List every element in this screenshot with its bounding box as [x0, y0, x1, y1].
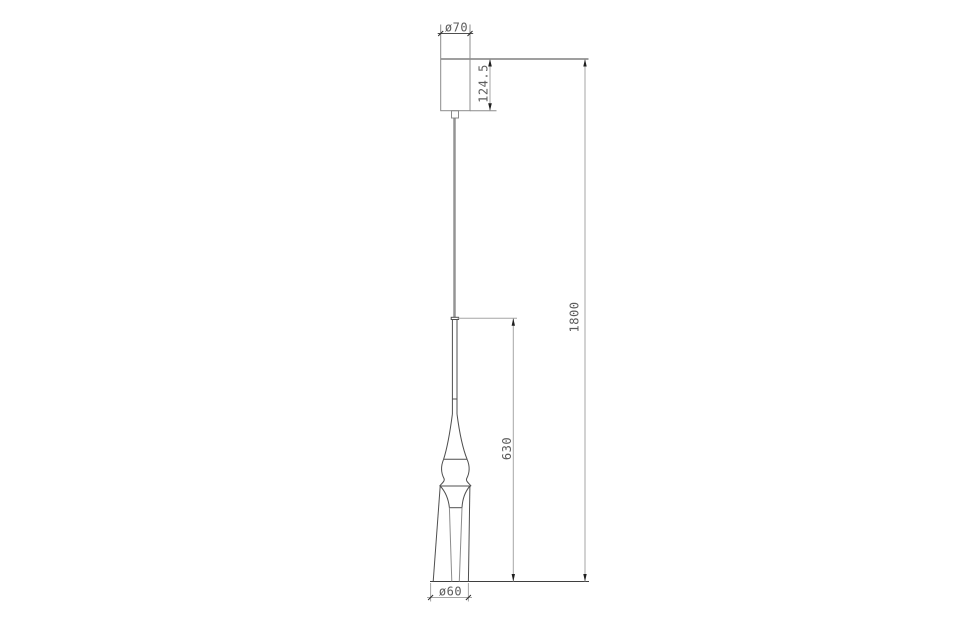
- drawing-canvas: ø70 124.5 630 1800 ø60: [0, 0, 975, 622]
- label-shade-height: 630: [500, 437, 514, 460]
- label-canopy-diameter: ø70: [445, 21, 468, 35]
- label-shade-diameter: ø60: [439, 585, 462, 599]
- label-overall-height: 1800: [567, 302, 581, 333]
- cord-grip-connector: [452, 111, 459, 118]
- arrowhead-up-icon: [583, 59, 586, 67]
- inner-tube-taper-lines: [449, 508, 462, 582]
- lamp-shade: [433, 414, 471, 582]
- rod-lines: [452, 320, 457, 415]
- arrowhead-down-icon: [488, 103, 492, 111]
- canopy-outline: [441, 34, 470, 111]
- pendant-lamp-dimension-drawing: ø70 124.5 630 1800 ø60: [0, 0, 975, 622]
- arrowhead-down-icon: [583, 574, 586, 582]
- stem-rod: [451, 317, 458, 414]
- upper-cone-right-edge: [457, 414, 467, 459]
- arrowhead-down-icon: [512, 574, 515, 582]
- rod-top-cap: [451, 317, 458, 319]
- baluster-right-edge: [466, 459, 471, 486]
- wire-lines: [454, 118, 455, 318]
- upper-cone-left-edge: [444, 414, 453, 459]
- label-canopy-height: 124.5: [476, 64, 490, 103]
- lower-body-right-edge: [468, 486, 470, 582]
- dimension-labels: ø70 124.5 630 1800 ø60: [439, 21, 581, 599]
- dimension-overall-height: [583, 59, 586, 582]
- baluster-left-edge: [440, 459, 445, 486]
- arrowhead-up-icon: [512, 318, 515, 326]
- inner-neck-right-curve: [462, 486, 470, 508]
- inner-neck-left-curve: [440, 486, 449, 508]
- lower-body-left-edge: [433, 486, 440, 582]
- suspension-wire: [454, 118, 455, 318]
